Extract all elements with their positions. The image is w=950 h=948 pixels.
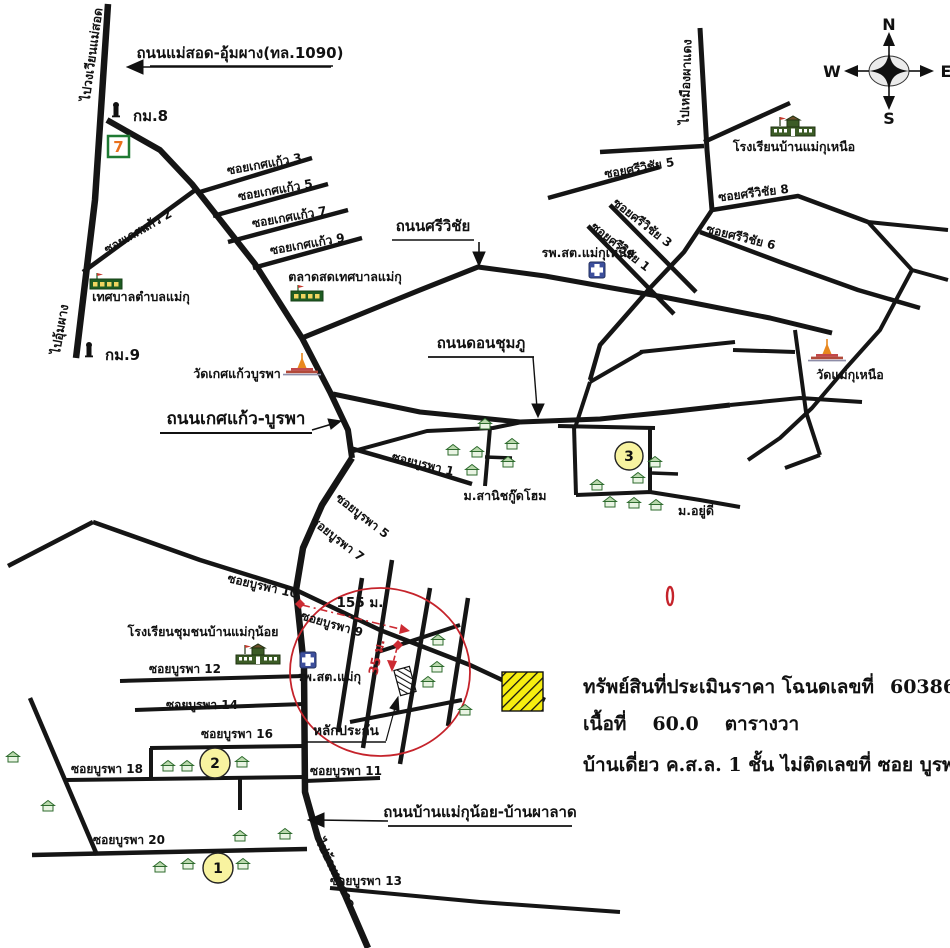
label-road-sriwichai: ถนนศรีวิชัย: [396, 217, 471, 235]
legend-line1-label: ทรัพย์สินที่ประเมินราคา โฉนดเลขที่: [583, 673, 874, 698]
compass-north: N: [882, 15, 895, 34]
road-temple-link: [785, 455, 820, 468]
road-don-chumphu: [333, 394, 730, 422]
label-village-sanit-goodhome: ม.สานิชกู๊ดโฮม: [464, 488, 547, 504]
marker-3-label: 3: [624, 449, 634, 465]
legend-deed-number: 60386: [890, 676, 950, 698]
school-maeku-nuea-icon: [771, 116, 815, 136]
label-to-phadaeng-mine: ไปเหมืองผาแดง: [676, 39, 694, 127]
legend-line1: ทรัพย์สินที่ประเมินราคา โฉนดเลขที่60386: [583, 673, 950, 698]
house-icon: [279, 829, 292, 840]
compass-south: S: [883, 109, 895, 128]
collateral-parcel: [394, 666, 416, 695]
road-east-1: [868, 222, 948, 230]
label-wat-maeku-nuea: วัดแม่กุเหนือ: [816, 367, 884, 383]
km9-milestone-icon: [85, 342, 93, 357]
seven-eleven-label: 7: [113, 138, 123, 156]
legend-line2: เนื้อที่60.0ตารางวา: [583, 709, 799, 735]
label-wat-ketkaew-burapha: วัดเกศแก้วบูรพา: [193, 366, 280, 382]
legend: ทรัพย์สินที่ประเมินราคา โฉนดเลขที่60386 …: [502, 672, 950, 777]
arrow-collateral-parcel: [390, 697, 399, 711]
road-west-boundary: [30, 698, 97, 855]
label-road-don-chumphu: ถนนดอนชุมภู: [437, 334, 526, 353]
map-canvas: 7: [0, 0, 950, 948]
house-icon: [7, 752, 20, 763]
label-road-ban-maekunoi-phalat: ถนนบ้านแม่กุน้อย-บ้านผาลาด: [383, 803, 576, 822]
house-icon: [431, 662, 444, 673]
house-icon: [236, 757, 249, 768]
label-health-center-maeku: รพ.สต.แม่กุ: [297, 669, 361, 685]
road-don-chumphu-east: [730, 398, 862, 405]
health-center-nuea-cross-icon: [589, 262, 605, 278]
road-block3-left: [574, 426, 576, 495]
house-icon: [459, 705, 472, 716]
road-ne-2: [640, 342, 735, 352]
house-icon: [432, 635, 445, 646]
label-village-yudee: ม.อยู่ดี: [678, 503, 714, 519]
label-soi-burapha-18: ซอยบูรพา 18: [71, 762, 143, 777]
compass-west: W: [823, 62, 841, 81]
label-to-ban-phalat: ไปบ้านผาลาด: [312, 834, 359, 910]
compass-star: [869, 51, 909, 91]
road-block3-stub: [652, 473, 678, 474]
house-icon: [447, 445, 460, 456]
house-icon: [632, 473, 645, 484]
house-icon: [506, 439, 519, 450]
label-soi-burapha-10: ซอยบูรพา 10: [226, 571, 300, 602]
municipality-building-icon: [90, 273, 122, 289]
label-soi-burapha-12: ซอยบูรพา 12: [149, 662, 221, 677]
house-icon: [237, 859, 250, 870]
road-north-horizontal: [600, 146, 704, 152]
label-to-umphang: ไปอุ้มผาง: [47, 303, 72, 357]
label-soi-burapha-1: ซอยบูรพา 1: [390, 450, 455, 480]
label-soi-ketkaew-2: ซอยเกศแก้ว 2: [102, 207, 175, 257]
house-icon: [591, 480, 604, 491]
school-maekunoi-icon: [236, 644, 280, 664]
road-soi-burapha-13: [330, 888, 620, 912]
label-soi-burapha-13: ซอยบูรพา 13: [330, 874, 402, 889]
label-soi-burapha-11: ซอยบูรพา 11: [310, 764, 382, 779]
label-distance-35: 35 ม.: [366, 638, 388, 676]
map-icons: 7: [85, 102, 846, 668]
label-soi-burapha-14: ซอยบูรพา 14: [166, 698, 238, 713]
house-icon: [182, 859, 195, 870]
house-icon: [650, 500, 663, 511]
legend-area-value: 60.0: [652, 713, 698, 735]
label-school-chumchon-maekunoi: โรงเรียนชุมชนบ้านแม่กุน้อย: [127, 624, 279, 640]
distance-155-arrowhead: [399, 624, 410, 634]
label-health-center-maeku-nuea: รพ.สต.แม่กุเหนือ: [542, 245, 635, 261]
road-soi-burapha-11: [305, 778, 380, 781]
label-soi-burapha-16: ซอยบูรพา 16: [201, 727, 273, 742]
seven-eleven-icon: 7: [108, 136, 129, 157]
road-temple-vertical: [795, 330, 820, 455]
label-distance-155: 155 ม.: [337, 595, 384, 611]
road-phadaeng-vertical: [700, 28, 712, 210]
label-soi-burapha-7: ซอยบูรพา 7: [307, 514, 366, 565]
label-km8: กม.8: [133, 107, 168, 125]
house-icon: [162, 761, 175, 772]
label-soi-sriwichai-5: ซอยศรีวิชัย 5: [603, 155, 675, 181]
road-west-branch: [8, 522, 93, 566]
temple-maeku-nuea-icon: [808, 339, 846, 361]
label-collateral: หลักประกัน: [313, 723, 380, 739]
health-center-maeku-cross-icon: [300, 652, 316, 668]
label-road-ketkaew-burapha: ถนนเกศแก้ว-บูรพา: [167, 409, 306, 430]
arrow-sriwichai-road: [473, 252, 485, 266]
legend-area-label: เนื้อที่: [583, 709, 626, 735]
property-location-map: 7: [0, 0, 950, 948]
road-ne-1: [733, 350, 795, 352]
house-icon: [234, 831, 247, 842]
label-talat-sot: ตลาดสดเทศบาลแม่กุ: [288, 269, 402, 285]
legend-line3: บ้านเดี่ยว ค.ส.ล. 1 ชั้น ไม่ติดเลขที่ ซอ…: [583, 750, 950, 777]
label-tessaban-tambon-maeku: เทศบาลตำบลแม่กุ: [92, 289, 190, 305]
house-icon: [471, 447, 484, 458]
label-km9: กม.9: [105, 346, 140, 364]
house-icon: [154, 862, 167, 873]
compass-rose: N E S W: [823, 15, 950, 128]
label-soi-burapha-20: ซอยบูรพา 20: [93, 833, 165, 848]
arrow-ketkaew-road: [328, 419, 341, 429]
arrow-maesot-road: [127, 60, 143, 74]
market-building-icon: [291, 285, 323, 301]
marker-1-label: 1: [213, 861, 223, 877]
house-icon: [604, 497, 617, 508]
house-icon: [42, 801, 55, 812]
house-icon: [181, 761, 194, 772]
house-icon: [422, 677, 435, 688]
road-soi-burapha-16: [150, 746, 305, 748]
road-sanit-top: [350, 422, 522, 452]
road-soi-burapha-18: [66, 777, 305, 780]
arrow-donchumphu-road: [532, 404, 544, 417]
house-icon: [628, 498, 641, 509]
road-soi-burapha-12: [120, 676, 304, 681]
red-mark: [667, 587, 673, 605]
marker-2-label: 2: [210, 756, 220, 772]
compass-east: E: [941, 62, 950, 81]
legend-swatch-hatch: [502, 672, 543, 711]
label-road-maesot-umphang: ถนนแม่สอด-อุ้มผาง(ทล.1090): [137, 44, 344, 63]
house-icon: [466, 465, 479, 476]
road-soi-burapha-20: [32, 849, 307, 855]
label-school-ban-maeku-nuea: โรงเรียนบ้านแม่กุเหนือ: [732, 139, 855, 155]
km8-milestone-icon: [112, 102, 120, 117]
legend-area-unit: ตารางวา: [725, 713, 800, 735]
